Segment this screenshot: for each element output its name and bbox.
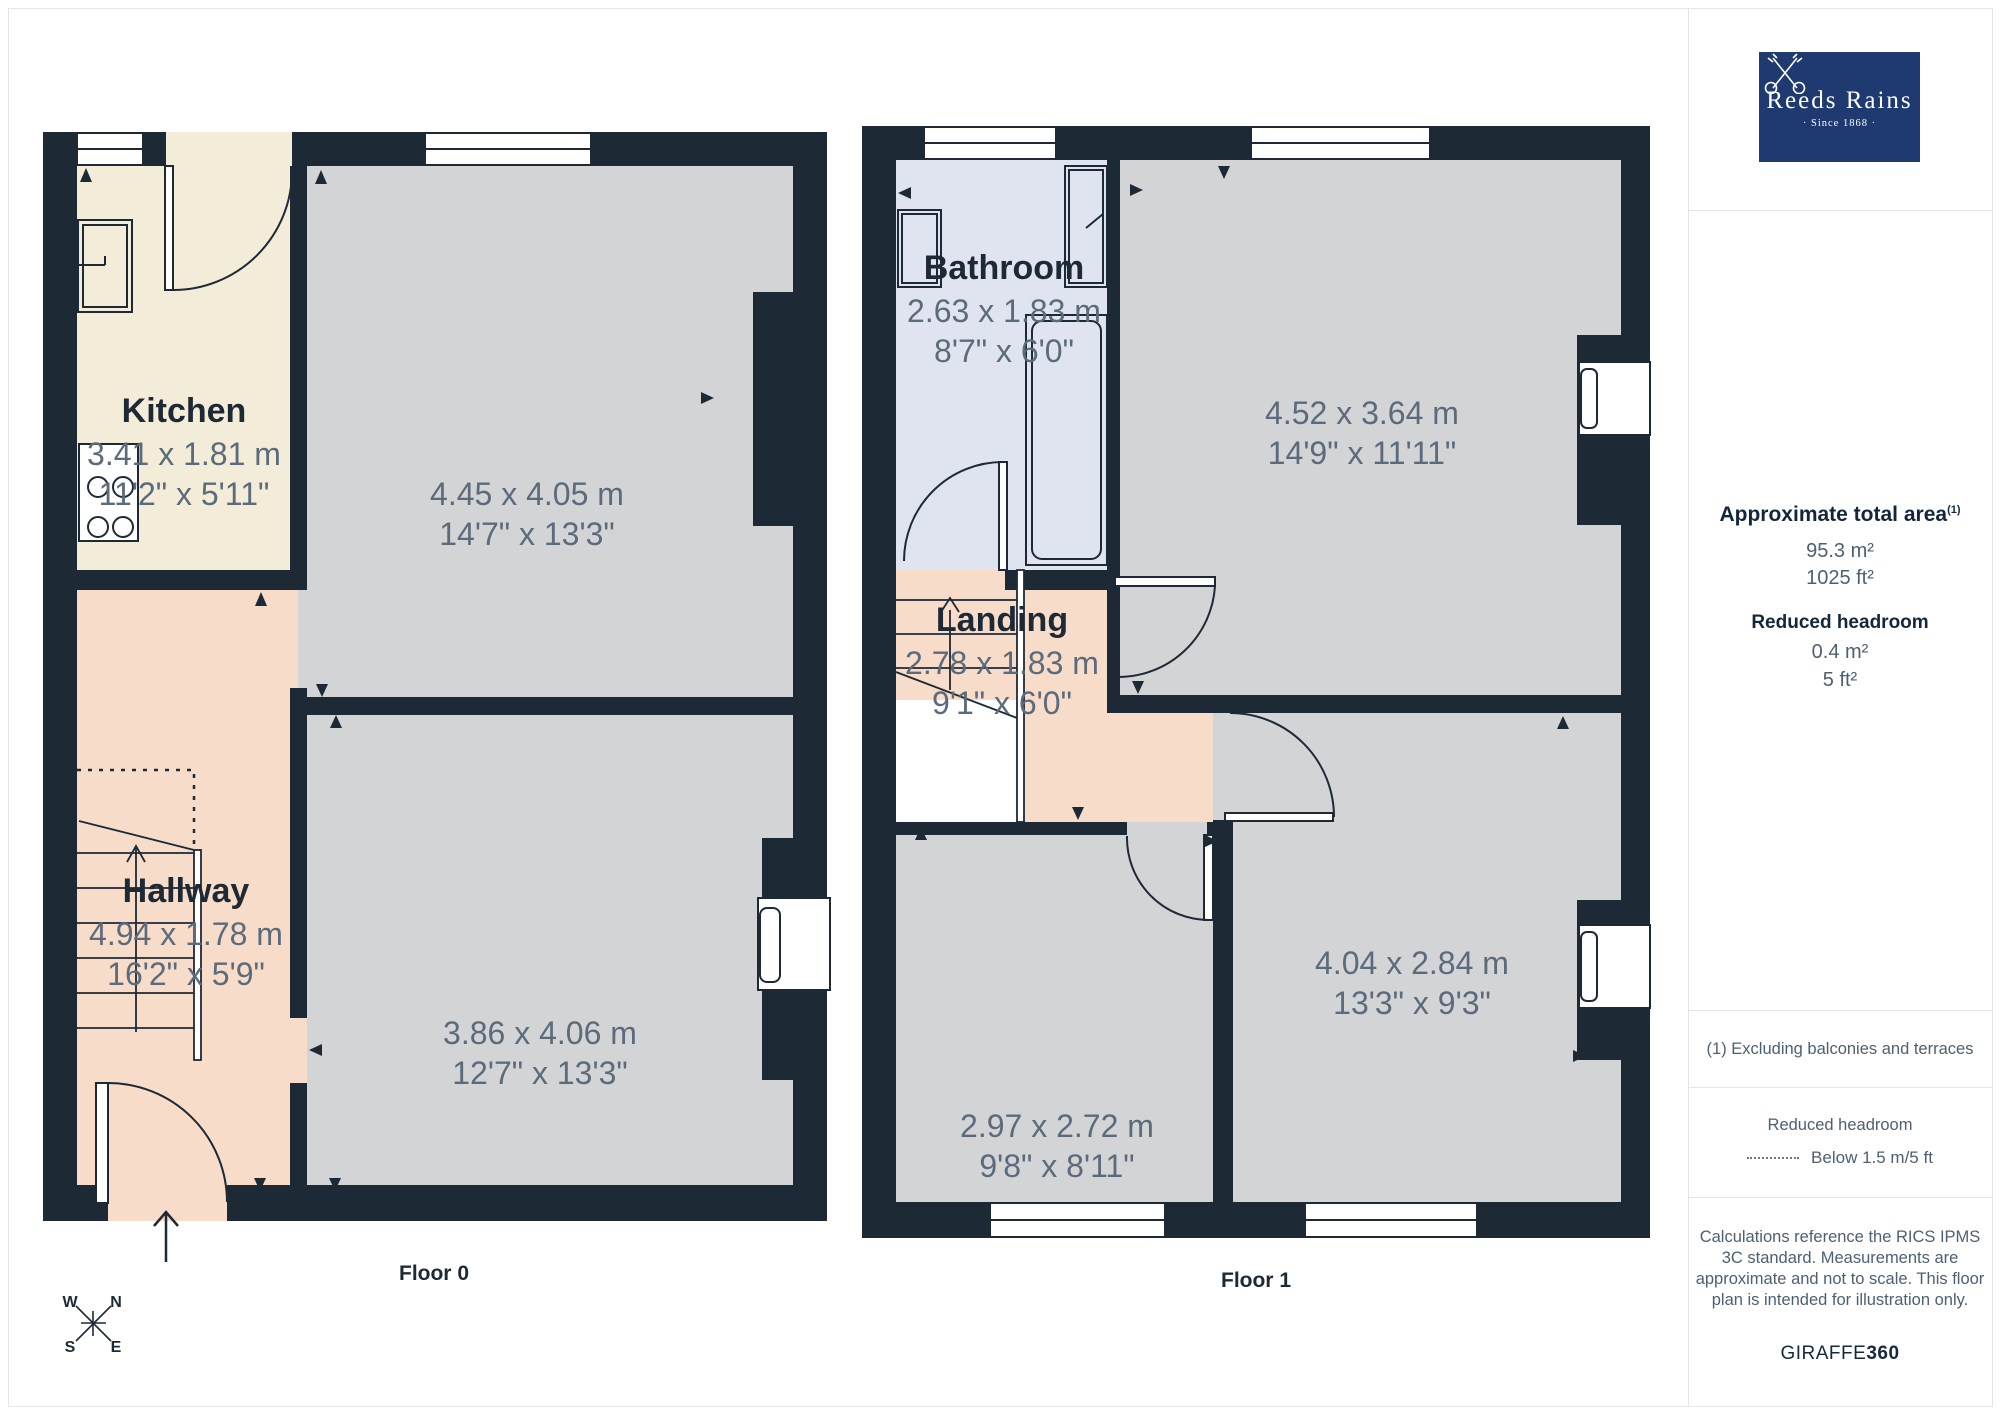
- kitchen-label: Kitchen 3.41 x 1.81 m 11'2" x 5'11": [87, 388, 281, 514]
- giraffe360-credit: GIRAFFE360: [1688, 1343, 1992, 1365]
- compass-s: S: [65, 1339, 76, 1357]
- room-name: Bathroom: [907, 245, 1101, 291]
- room-size-metric: 4.45 x 4.05 m: [430, 476, 624, 512]
- floor1-label: Floor 1: [1221, 1269, 1291, 1293]
- room-size-metric: 3.86 x 4.06 m: [443, 1015, 637, 1051]
- chimney-breast: [753, 292, 827, 526]
- crossed-keys-icon: [1759, 52, 1811, 94]
- room-size-metric: 4.52 x 3.64 m: [1265, 395, 1459, 431]
- room-size-metric: 4.94 x 1.78 m: [89, 916, 283, 952]
- bathroom-label: Bathroom 2.63 x 1.83 m 8'7" x 6'0": [907, 245, 1101, 371]
- section-divider: [1689, 1197, 1992, 1198]
- bedroom1-label: 4.52 x 3.64 m 14'9" x 11'11": [1265, 393, 1459, 473]
- brand-logo: Reeds Rains · Since 1868 ·: [1759, 52, 1920, 162]
- brand-tagline: · Since 1868 ·: [1803, 118, 1876, 129]
- compass-icon: [76, 1306, 111, 1341]
- reception1-label: 4.45 x 4.05 m 14'7" x 13'3": [430, 474, 624, 554]
- reception2-label: 3.86 x 4.06 m 12'7" x 13'3": [443, 1013, 637, 1093]
- room-reception2: [298, 697, 793, 1185]
- legend-row: Below 1.5 m/5 ft: [1688, 1148, 1992, 1168]
- room-size-imperial: 14'9" x 11'11": [1268, 435, 1457, 471]
- room-size-imperial: 14'7" x 13'3": [439, 516, 615, 552]
- total-area-m2: 95.3 m²: [1688, 540, 1992, 563]
- room-name: Landing: [905, 597, 1099, 643]
- floorplan-page: Kitchen 3.41 x 1.81 m 11'2" x 5'11" 4.45…: [0, 0, 2000, 1414]
- section-divider: [1689, 210, 1992, 211]
- reduced-headroom-m2: 0.4 m²: [1688, 641, 1992, 664]
- room-name: Kitchen: [87, 388, 281, 434]
- total-area-title: Approximate total area(1): [1688, 503, 1992, 527]
- room-size-imperial: 9'1" x 6'0": [932, 685, 1072, 721]
- dotted-line-icon: [1747, 1157, 1799, 1159]
- floor-plan-0: [43, 132, 830, 1262]
- disclaimer-text: Calculations reference the RICS IPMS 3C …: [1690, 1227, 1990, 1311]
- reduced-headroom-title: Reduced headroom: [1688, 612, 1992, 634]
- section-divider: [1689, 1087, 1992, 1088]
- room-size-metric: 4.04 x 2.84 m: [1315, 945, 1509, 981]
- area-footnote: (1) Excluding balconies and terraces: [1688, 1040, 1992, 1059]
- room-size-metric: 2.63 x 1.83 m: [907, 293, 1101, 329]
- room-size-imperial: 11'2" x 5'11": [99, 476, 270, 512]
- compass-e: E: [111, 1339, 122, 1357]
- reduced-headroom-ft2: 5 ft²: [1688, 669, 1992, 692]
- bedroom3-label: 4.04 x 2.84 m 13'3" x 9'3": [1315, 943, 1509, 1023]
- bedroom2-label: 2.97 x 2.72 m 9'8" x 8'11": [960, 1106, 1154, 1186]
- room-name: Hallway: [89, 868, 283, 914]
- landing-label: Landing 2.78 x 1.83 m 9'1" x 6'0": [905, 597, 1099, 723]
- room-size-imperial: 16'2" x 5'9": [107, 956, 265, 992]
- hallway-label: Hallway 4.94 x 1.78 m 16'2" x 5'9": [89, 868, 283, 994]
- compass-w: W: [62, 1294, 77, 1312]
- room-size-imperial: 8'7" x 6'0": [934, 333, 1074, 369]
- room-size-metric: 3.41 x 1.81 m: [87, 436, 281, 472]
- floor0-label: Floor 0: [399, 1262, 469, 1286]
- section-divider: [1689, 1010, 1992, 1011]
- footnote-marker: (1): [1947, 504, 1960, 516]
- total-area-ft2: 1025 ft²: [1688, 567, 1992, 590]
- compass-n: N: [110, 1294, 122, 1312]
- room-size-metric: 2.97 x 2.72 m: [960, 1108, 1154, 1144]
- room-size-imperial: 13'3" x 9'3": [1333, 985, 1491, 1021]
- room-reception1: [298, 166, 793, 697]
- room-size-imperial: 9'8" x 8'11": [979, 1148, 1134, 1184]
- legend-title: Reduced headroom: [1688, 1116, 1992, 1135]
- room-size-metric: 2.78 x 1.83 m: [905, 645, 1099, 681]
- room-size-imperial: 12'7" x 13'3": [452, 1055, 628, 1091]
- legend-label: Below 1.5 m/5 ft: [1811, 1148, 1933, 1168]
